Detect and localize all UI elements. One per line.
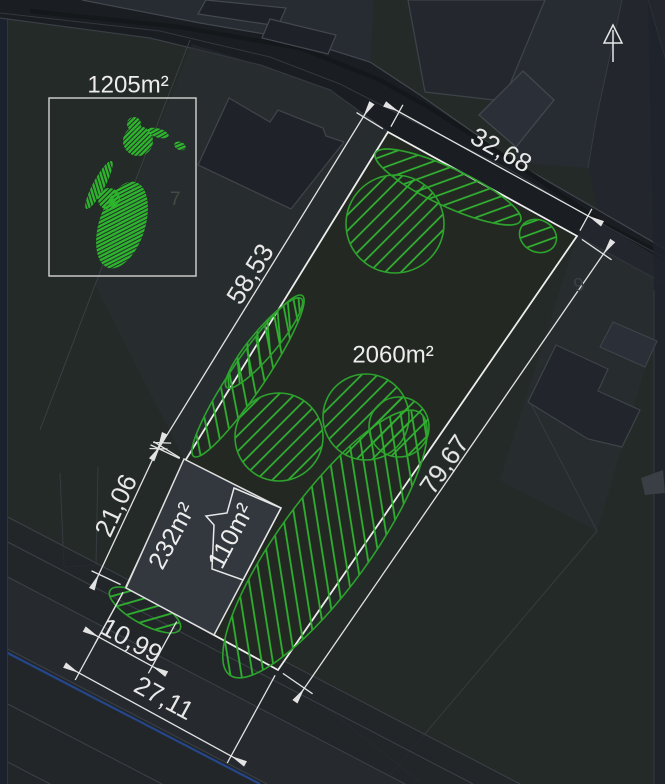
svg-text:2060m²: 2060m²	[352, 342, 433, 369]
svg-text:7: 7	[170, 189, 181, 210]
svg-text:1205m²: 1205m²	[87, 72, 168, 99]
